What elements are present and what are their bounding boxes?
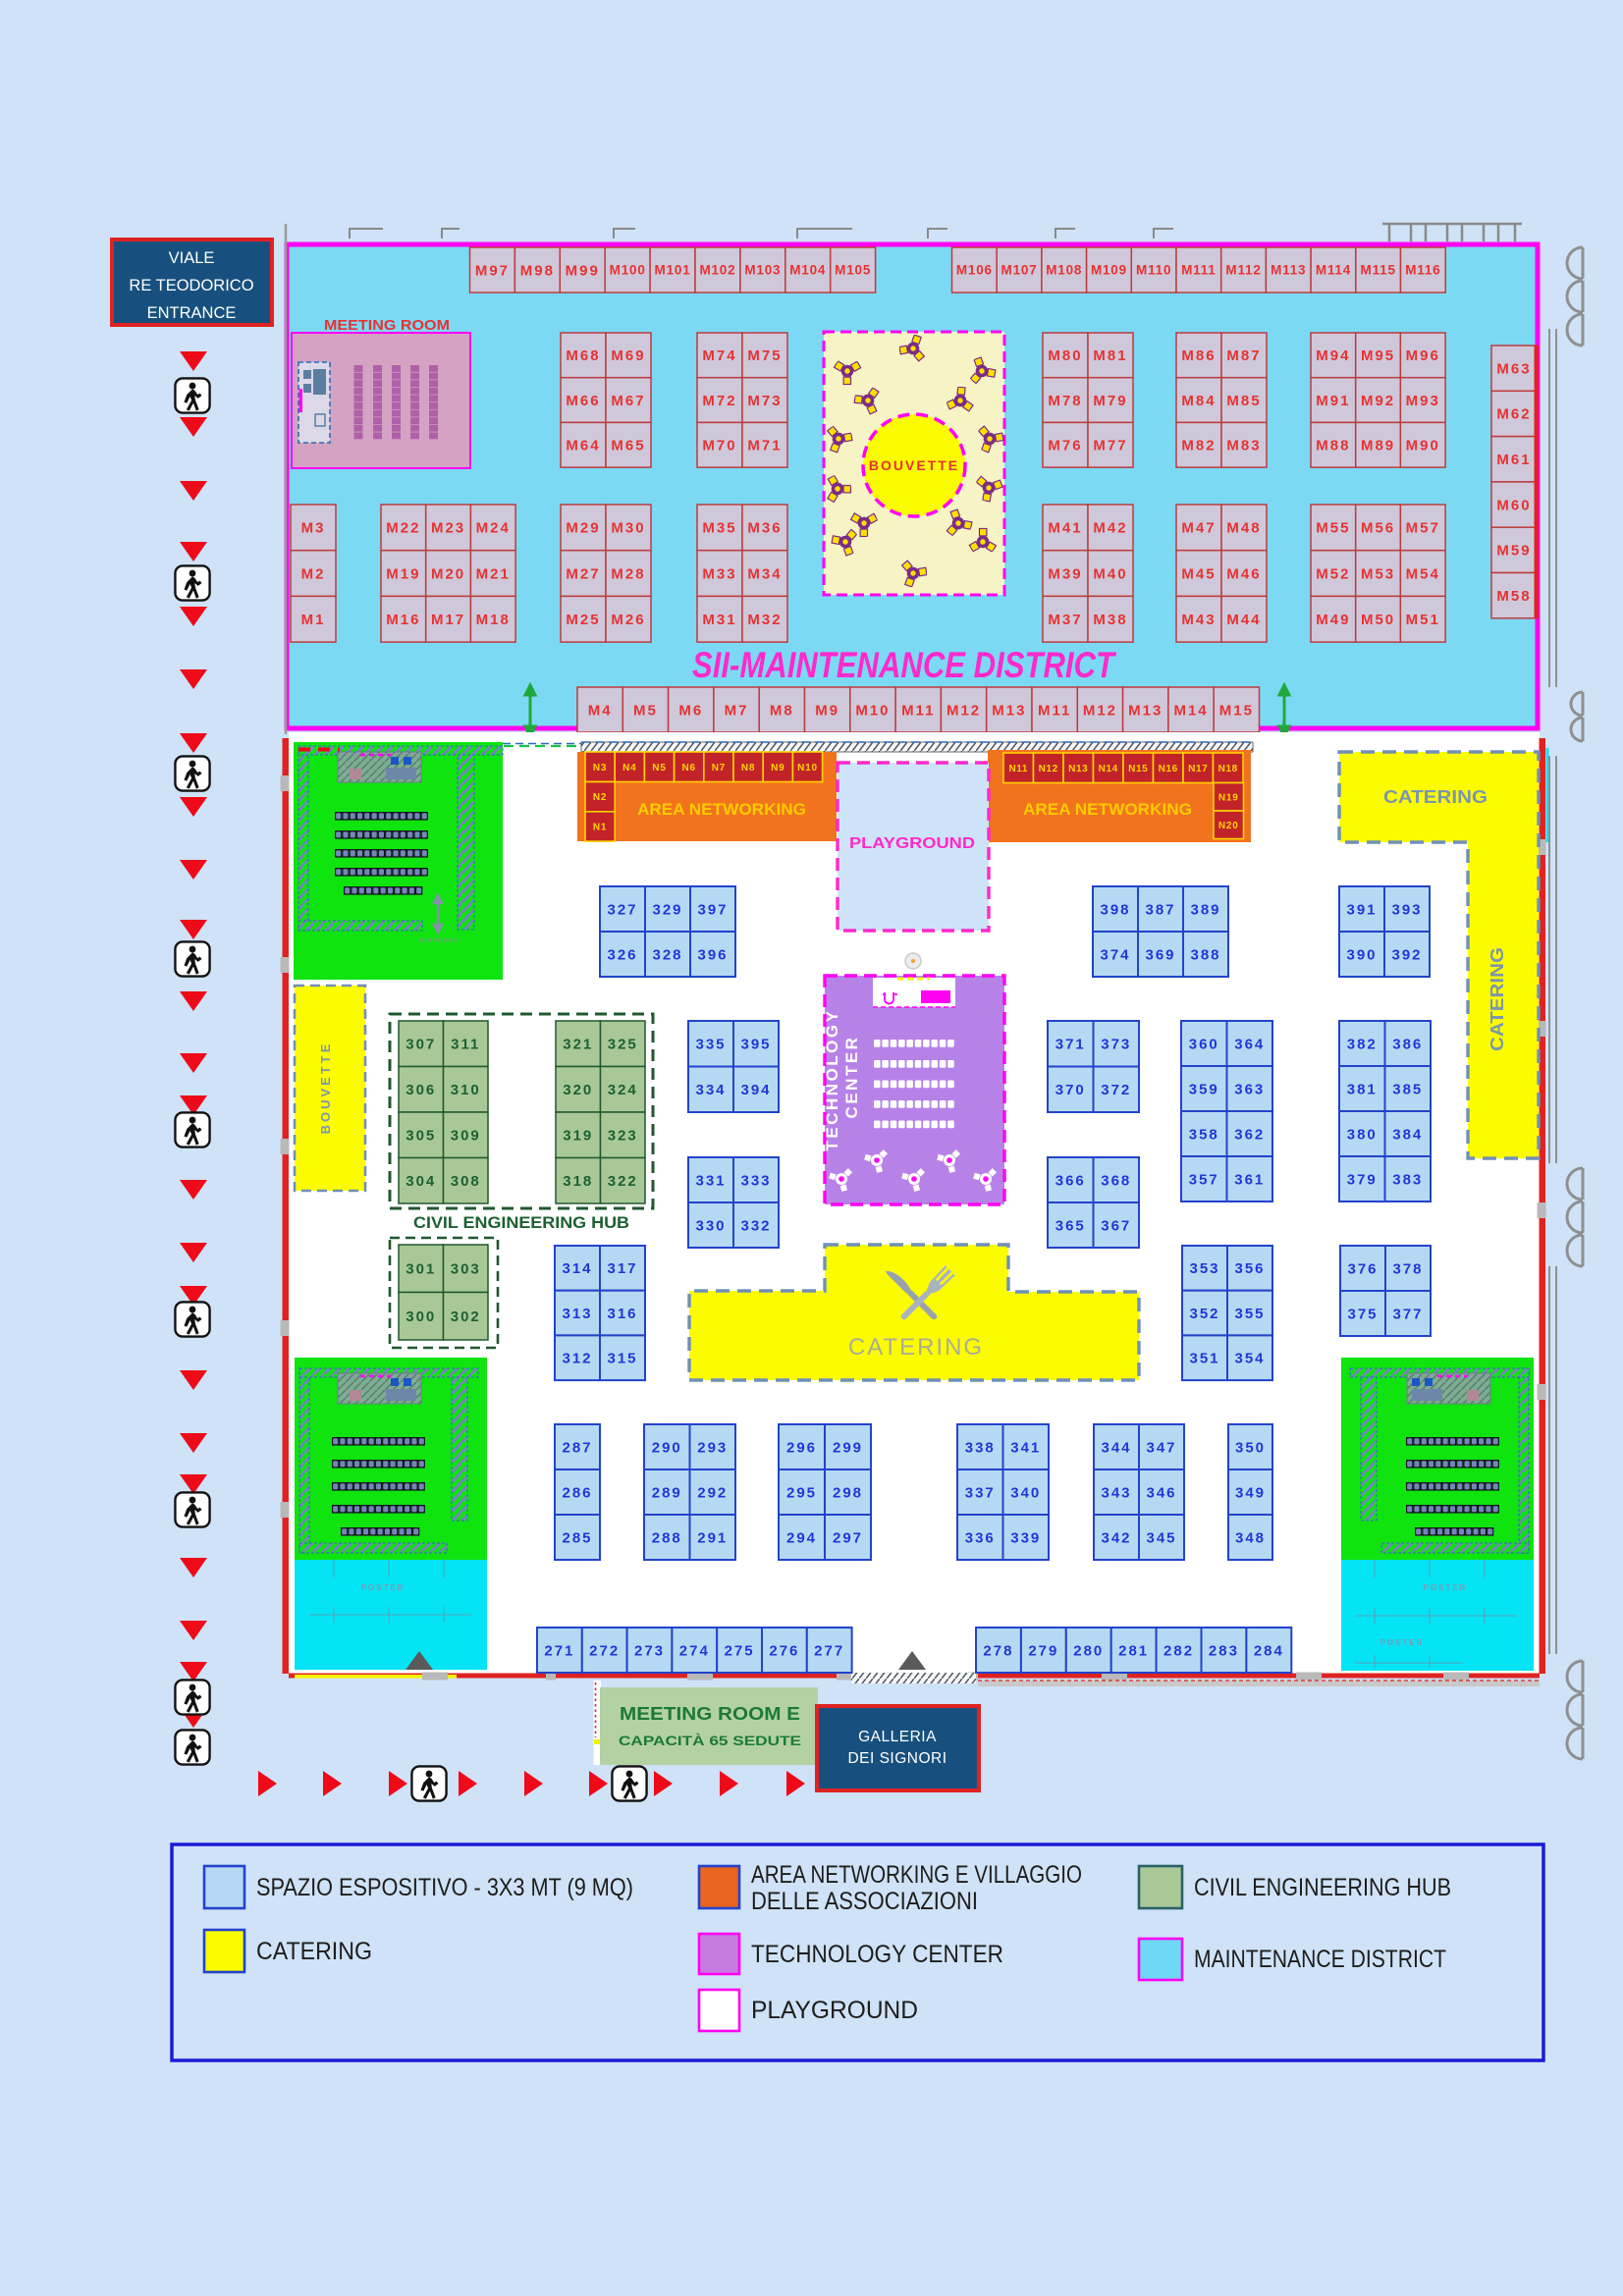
svg-text:M4: M4	[588, 702, 613, 719]
svg-text:M32: M32	[747, 612, 782, 628]
svg-text:M67: M67	[611, 393, 645, 409]
svg-text:M30: M30	[611, 520, 645, 537]
svg-text:DEI SIGNORI: DEI SIGNORI	[847, 1750, 947, 1767]
svg-text:M58: M58	[1496, 588, 1531, 605]
svg-text:M16: M16	[386, 612, 420, 628]
svg-text:336: 336	[965, 1529, 996, 1546]
svg-text:M105: M105	[835, 263, 871, 278]
svg-text:289: 289	[652, 1484, 682, 1501]
svg-text:370: 370	[1055, 1082, 1086, 1098]
svg-text:M45: M45	[1181, 565, 1216, 582]
svg-text:BOUVETTE: BOUVETTE	[318, 1041, 333, 1135]
svg-text:355: 355	[1234, 1306, 1265, 1322]
svg-text:M60: M60	[1496, 497, 1531, 513]
svg-text:388: 388	[1190, 946, 1220, 963]
svg-text:294: 294	[786, 1529, 817, 1546]
svg-text:INGRESSO: INGRESSO	[419, 938, 459, 944]
svg-text:364: 364	[1234, 1036, 1265, 1052]
svg-text:378: 378	[1392, 1260, 1423, 1277]
svg-text:360: 360	[1189, 1036, 1219, 1052]
svg-text:M99: M99	[566, 262, 600, 279]
svg-text:317: 317	[607, 1260, 637, 1277]
svg-text:393: 393	[1391, 901, 1422, 918]
svg-text:M111: M111	[1181, 263, 1216, 278]
svg-text:M63: M63	[1496, 360, 1531, 377]
svg-text:M28: M28	[611, 565, 645, 582]
svg-text:339: 339	[1010, 1529, 1041, 1546]
svg-text:367: 367	[1101, 1217, 1131, 1234]
svg-text:325: 325	[608, 1037, 638, 1053]
svg-text:342: 342	[1101, 1529, 1131, 1546]
svg-text:M50: M50	[1361, 612, 1395, 628]
svg-text:295: 295	[786, 1484, 817, 1501]
svg-text:M61: M61	[1496, 452, 1531, 468]
svg-text:345: 345	[1146, 1529, 1176, 1546]
svg-text:M5: M5	[633, 702, 658, 719]
svg-text:284: 284	[1254, 1642, 1284, 1659]
svg-text:398: 398	[1100, 901, 1130, 918]
svg-text:310: 310	[451, 1082, 481, 1098]
svg-text:314: 314	[562, 1260, 592, 1277]
svg-text:N15: N15	[1128, 764, 1148, 774]
svg-text:TECHNOLOGY CENTER: TECHNOLOGY CENTER	[751, 1941, 1003, 1968]
svg-text:M70: M70	[702, 438, 736, 454]
svg-text:324: 324	[608, 1082, 638, 1098]
svg-text:N9: N9	[771, 763, 784, 774]
svg-text:M64: M64	[566, 438, 600, 454]
svg-text:M78: M78	[1048, 393, 1082, 409]
svg-text:M107: M107	[1001, 263, 1038, 278]
svg-text:N14: N14	[1099, 764, 1118, 774]
svg-text:M90: M90	[1406, 438, 1440, 454]
svg-text:SII-MAINTENANCE DISTRICT: SII-MAINTENANCE DISTRICT	[692, 645, 1117, 685]
svg-text:M1: M1	[301, 612, 326, 628]
svg-text:N8: N8	[741, 763, 755, 774]
svg-text:273: 273	[634, 1642, 665, 1659]
svg-text:M108: M108	[1046, 263, 1082, 278]
svg-text:CATERING: CATERING	[1488, 947, 1507, 1051]
svg-text:M97: M97	[475, 262, 510, 279]
svg-text:M10: M10	[855, 702, 890, 719]
svg-text:379: 379	[1347, 1171, 1378, 1188]
svg-text:CIVIL ENGINEERING HUB: CIVIL ENGINEERING HUB	[413, 1214, 629, 1232]
svg-text:POSTER: POSTER	[1380, 1638, 1425, 1647]
svg-text:M81: M81	[1093, 347, 1127, 364]
svg-text:M53: M53	[1361, 565, 1395, 582]
svg-text:TECHNOLOGY: TECHNOLOGY	[823, 1009, 841, 1151]
svg-text:382: 382	[1347, 1036, 1378, 1052]
svg-text:313: 313	[562, 1306, 592, 1322]
svg-text:N11: N11	[1008, 764, 1028, 774]
svg-text:M13: M13	[992, 702, 1026, 719]
svg-text:282: 282	[1163, 1642, 1194, 1659]
svg-text:318: 318	[563, 1173, 593, 1190]
svg-text:M43: M43	[1181, 612, 1216, 628]
svg-text:M8: M8	[770, 702, 794, 719]
svg-text:332: 332	[740, 1217, 771, 1234]
svg-text:286: 286	[562, 1484, 592, 1501]
svg-text:BOUVETTE: BOUVETTE	[869, 457, 959, 473]
svg-text:365: 365	[1055, 1217, 1086, 1234]
svg-text:M94: M94	[1316, 347, 1350, 364]
svg-text:387: 387	[1145, 901, 1175, 918]
svg-text:386: 386	[1392, 1036, 1423, 1052]
svg-text:AREA NETWORKING E VILLAGGIO: AREA NETWORKING E VILLAGGIO	[751, 1861, 1082, 1889]
svg-text:M57: M57	[1406, 520, 1440, 537]
svg-text:380: 380	[1347, 1126, 1378, 1143]
svg-text:M69: M69	[611, 347, 645, 364]
svg-text:303: 303	[451, 1261, 481, 1278]
svg-text:359: 359	[1189, 1081, 1219, 1097]
svg-text:M68: M68	[566, 347, 600, 364]
svg-text:311: 311	[451, 1037, 480, 1053]
svg-text:356: 356	[1234, 1260, 1265, 1277]
svg-text:340: 340	[1010, 1484, 1041, 1501]
svg-text:M106: M106	[956, 263, 993, 278]
svg-text:M103: M103	[744, 263, 781, 278]
svg-text:M51: M51	[1406, 612, 1440, 628]
svg-text:M11: M11	[901, 702, 935, 719]
svg-text:M52: M52	[1316, 565, 1350, 582]
svg-text:M109: M109	[1091, 263, 1127, 278]
svg-text:369: 369	[1145, 946, 1175, 963]
svg-text:291: 291	[697, 1529, 728, 1546]
svg-text:M13: M13	[1128, 702, 1163, 719]
svg-text:383: 383	[1392, 1171, 1423, 1188]
svg-text:M27: M27	[566, 565, 600, 582]
svg-text:287: 287	[562, 1439, 592, 1456]
svg-text:351: 351	[1189, 1351, 1219, 1367]
svg-text:320: 320	[563, 1082, 593, 1098]
svg-text:M115: M115	[1361, 263, 1396, 278]
svg-text:306: 306	[406, 1082, 436, 1098]
svg-text:M110: M110	[1136, 263, 1171, 278]
svg-text:352: 352	[1189, 1306, 1219, 1322]
svg-text:343: 343	[1101, 1484, 1131, 1501]
svg-text:347: 347	[1146, 1439, 1176, 1456]
svg-text:M37: M37	[1048, 612, 1082, 628]
svg-text:323: 323	[608, 1128, 638, 1145]
svg-text:274: 274	[679, 1642, 710, 1659]
svg-text:346: 346	[1146, 1484, 1176, 1501]
svg-text:338: 338	[965, 1439, 996, 1456]
svg-text:385: 385	[1392, 1081, 1423, 1097]
svg-text:363: 363	[1234, 1081, 1265, 1097]
svg-text:N17: N17	[1188, 764, 1208, 774]
svg-text:300: 300	[406, 1308, 436, 1325]
svg-text:277: 277	[814, 1642, 844, 1659]
svg-text:CIVIL ENGINEERING HUB: CIVIL ENGINEERING HUB	[1194, 1874, 1451, 1901]
svg-text:M31: M31	[702, 612, 736, 628]
svg-text:278: 278	[983, 1642, 1013, 1659]
svg-text:CATERING: CATERING	[1383, 787, 1488, 807]
svg-text:396: 396	[697, 946, 728, 963]
svg-text:N7: N7	[712, 763, 726, 774]
svg-text:395: 395	[740, 1037, 771, 1053]
svg-text:397: 397	[697, 901, 728, 918]
svg-text:361: 361	[1234, 1171, 1265, 1188]
svg-text:M114: M114	[1316, 263, 1351, 278]
svg-text:MEETING ROOM E: MEETING ROOM E	[620, 1704, 800, 1724]
svg-text:M87: M87	[1226, 347, 1261, 364]
svg-text:PLAYGROUND: PLAYGROUND	[849, 835, 975, 852]
svg-text:VIALE: VIALE	[169, 249, 215, 267]
svg-text:M19: M19	[386, 565, 420, 582]
svg-text:353: 353	[1189, 1260, 1219, 1277]
svg-text:312: 312	[562, 1351, 592, 1367]
svg-text:M38: M38	[1093, 612, 1127, 628]
svg-text:308: 308	[451, 1173, 481, 1190]
svg-text:M20: M20	[431, 565, 465, 582]
svg-text:280: 280	[1073, 1642, 1104, 1659]
svg-text:329: 329	[652, 901, 682, 918]
svg-text:348: 348	[1235, 1529, 1266, 1546]
svg-text:MEETING ROOM: MEETING ROOM	[324, 318, 450, 334]
svg-text:327: 327	[607, 901, 637, 918]
svg-text:M113: M113	[1271, 263, 1306, 278]
svg-text:M7: M7	[725, 702, 749, 719]
svg-text:M25: M25	[566, 612, 600, 628]
svg-text:299: 299	[833, 1439, 863, 1456]
svg-text:M80: M80	[1048, 347, 1082, 364]
svg-text:389: 389	[1190, 901, 1220, 918]
svg-text:354: 354	[1234, 1351, 1265, 1367]
svg-text:M35: M35	[702, 520, 736, 537]
svg-text:276: 276	[769, 1642, 799, 1659]
svg-text:368: 368	[1101, 1172, 1131, 1189]
svg-text:322: 322	[608, 1173, 638, 1190]
svg-text:373: 373	[1101, 1037, 1131, 1053]
svg-text:M96: M96	[1406, 347, 1440, 364]
svg-text:M46: M46	[1226, 565, 1261, 582]
svg-text:N20: N20	[1218, 821, 1239, 831]
svg-text:SPAZIO ESPOSITIVO - 3X3 MT (9: SPAZIO ESPOSITIVO - 3X3 MT (9 MQ)	[256, 1874, 633, 1901]
svg-text:326: 326	[607, 946, 637, 963]
svg-text:M104: M104	[789, 263, 826, 278]
svg-text:M3: M3	[301, 520, 326, 537]
svg-text:293: 293	[697, 1439, 728, 1456]
svg-text:M66: M66	[566, 393, 600, 409]
svg-text:M79: M79	[1093, 393, 1127, 409]
svg-text:M74: M74	[702, 347, 736, 364]
svg-text:PLAYGROUND: PLAYGROUND	[751, 1997, 918, 2024]
svg-text:M101: M101	[655, 263, 691, 278]
svg-text:N16: N16	[1159, 764, 1178, 774]
svg-text:N3: N3	[593, 763, 607, 774]
svg-text:279: 279	[1028, 1642, 1058, 1659]
svg-text:292: 292	[697, 1484, 728, 1501]
svg-text:366: 366	[1055, 1172, 1086, 1189]
svg-text:357: 357	[1189, 1171, 1219, 1188]
svg-text:M59: M59	[1496, 543, 1531, 560]
svg-text:350: 350	[1235, 1439, 1266, 1456]
svg-text:390: 390	[1346, 946, 1377, 963]
svg-text:376: 376	[1347, 1260, 1378, 1277]
svg-text:372: 372	[1101, 1082, 1131, 1098]
svg-text:M95: M95	[1361, 347, 1395, 364]
svg-text:N18: N18	[1218, 764, 1238, 774]
svg-text:319: 319	[563, 1128, 593, 1145]
svg-text:301: 301	[406, 1261, 436, 1278]
svg-text:M22: M22	[386, 520, 420, 537]
svg-text:304: 304	[406, 1173, 436, 1190]
svg-text:N12: N12	[1039, 764, 1058, 774]
svg-text:305: 305	[406, 1128, 436, 1145]
svg-text:374: 374	[1100, 946, 1130, 963]
svg-text:349: 349	[1235, 1484, 1266, 1501]
svg-text:344: 344	[1101, 1439, 1131, 1456]
svg-text:377: 377	[1392, 1306, 1423, 1322]
svg-text:POSTER: POSTER	[1424, 1583, 1468, 1592]
svg-text:M54: M54	[1406, 565, 1440, 582]
svg-text:M40: M40	[1093, 565, 1127, 582]
svg-text:394: 394	[740, 1082, 771, 1098]
svg-text:392: 392	[1391, 946, 1422, 963]
svg-text:M49: M49	[1316, 612, 1350, 628]
svg-text:333: 333	[740, 1172, 771, 1189]
svg-text:M71: M71	[747, 438, 782, 454]
svg-text:309: 309	[451, 1128, 481, 1145]
svg-text:330: 330	[695, 1217, 726, 1234]
svg-text:M11: M11	[1038, 702, 1071, 719]
svg-text:N6: N6	[682, 763, 696, 774]
svg-text:271: 271	[544, 1642, 574, 1659]
svg-text:M48: M48	[1226, 520, 1261, 537]
svg-text:POSTER: POSTER	[361, 1583, 406, 1592]
svg-text:M73: M73	[747, 393, 782, 409]
svg-text:298: 298	[833, 1484, 863, 1501]
svg-text:M85: M85	[1226, 393, 1261, 409]
svg-text:M12: M12	[947, 702, 981, 719]
svg-text:315: 315	[607, 1351, 637, 1367]
svg-text:MAINTENANCE DISTRICT: MAINTENANCE DISTRICT	[1194, 1946, 1446, 1973]
svg-text:341: 341	[1010, 1439, 1041, 1456]
svg-text:N5: N5	[652, 763, 666, 774]
svg-text:M18: M18	[476, 612, 511, 628]
svg-text:M116: M116	[1405, 263, 1440, 278]
svg-text:296: 296	[786, 1439, 817, 1456]
svg-text:M41: M41	[1048, 520, 1082, 537]
svg-text:N10: N10	[797, 763, 818, 774]
svg-text:M15: M15	[1219, 702, 1254, 719]
svg-text:M36: M36	[747, 520, 782, 537]
svg-text:M24: M24	[476, 520, 511, 537]
svg-text:275: 275	[725, 1642, 755, 1659]
svg-text:288: 288	[652, 1529, 682, 1546]
svg-text:M93: M93	[1406, 393, 1440, 409]
svg-text:M29: M29	[566, 520, 600, 537]
svg-text:337: 337	[965, 1484, 996, 1501]
svg-text:M17: M17	[431, 612, 465, 628]
svg-text:CAPACITÀ 65 SEDUTE: CAPACITÀ 65 SEDUTE	[619, 1733, 801, 1748]
svg-text:M26: M26	[611, 612, 645, 628]
svg-text:283: 283	[1209, 1642, 1239, 1659]
svg-text:M47: M47	[1181, 520, 1216, 537]
svg-text:N2: N2	[593, 792, 607, 803]
svg-text:M33: M33	[702, 565, 736, 582]
svg-text:358: 358	[1189, 1126, 1219, 1143]
svg-text:ENTRANCE: ENTRANCE	[147, 304, 237, 322]
svg-text:N13: N13	[1068, 764, 1088, 774]
svg-text:M42: M42	[1093, 520, 1127, 537]
svg-text:M34: M34	[747, 565, 782, 582]
svg-text:M55: M55	[1316, 520, 1350, 537]
svg-text:M86: M86	[1181, 347, 1216, 364]
svg-text:M83: M83	[1226, 438, 1261, 454]
svg-text:M62: M62	[1496, 406, 1531, 423]
svg-text:M88: M88	[1316, 438, 1350, 454]
svg-text:316: 316	[607, 1306, 637, 1322]
svg-text:M112: M112	[1225, 263, 1261, 278]
svg-text:GALLERIA: GALLERIA	[858, 1729, 937, 1745]
svg-text:AREA NETWORKING: AREA NETWORKING	[637, 800, 806, 819]
svg-text:321: 321	[563, 1037, 593, 1053]
svg-text:391: 391	[1346, 901, 1377, 918]
svg-text:375: 375	[1347, 1306, 1378, 1322]
svg-text:M82: M82	[1181, 438, 1216, 454]
svg-text:M75: M75	[747, 347, 782, 364]
svg-text:M56: M56	[1361, 520, 1395, 537]
svg-text:362: 362	[1234, 1126, 1265, 1143]
svg-text:272: 272	[589, 1642, 620, 1659]
svg-text:M102: M102	[699, 263, 735, 278]
svg-text:334: 334	[695, 1082, 726, 1098]
svg-text:M100: M100	[610, 263, 646, 278]
svg-text:281: 281	[1118, 1642, 1149, 1659]
svg-text:328: 328	[652, 946, 682, 963]
svg-text:M44: M44	[1226, 612, 1261, 628]
svg-text:M65: M65	[611, 438, 645, 454]
svg-text:M6: M6	[678, 702, 703, 719]
svg-text:384: 384	[1392, 1126, 1423, 1143]
svg-text:DELLE ASSOCIAZIONI: DELLE ASSOCIAZIONI	[751, 1888, 978, 1915]
svg-text:331: 331	[695, 1172, 726, 1189]
svg-text:M9: M9	[815, 702, 839, 719]
svg-text:M72: M72	[702, 393, 736, 409]
svg-text:N19: N19	[1218, 792, 1239, 803]
svg-text:N4: N4	[622, 763, 636, 774]
svg-text:307: 307	[406, 1037, 436, 1053]
svg-text:N1: N1	[593, 822, 607, 832]
svg-text:M84: M84	[1181, 393, 1216, 409]
svg-text:371: 371	[1055, 1037, 1086, 1053]
svg-text:M98: M98	[520, 262, 555, 279]
svg-text:M23: M23	[431, 520, 465, 537]
svg-text:M77: M77	[1093, 438, 1127, 454]
svg-text:AREA NETWORKING: AREA NETWORKING	[1023, 800, 1192, 819]
svg-text:CATERING: CATERING	[256, 1938, 372, 1965]
svg-text:297: 297	[833, 1529, 863, 1546]
svg-text:290: 290	[652, 1439, 682, 1456]
svg-text:M14: M14	[1173, 702, 1208, 719]
svg-text:381: 381	[1347, 1081, 1378, 1097]
svg-text:335: 335	[695, 1037, 726, 1053]
svg-text:M12: M12	[1083, 702, 1117, 719]
svg-text:M39: M39	[1048, 565, 1082, 582]
svg-text:CATERING: CATERING	[848, 1334, 984, 1361]
svg-text:M89: M89	[1361, 438, 1395, 454]
svg-text:M92: M92	[1361, 393, 1395, 409]
svg-text:302: 302	[451, 1308, 481, 1325]
svg-text:RE TEODORICO: RE TEODORICO	[129, 277, 253, 294]
svg-text:M91: M91	[1316, 393, 1350, 409]
svg-text:M2: M2	[301, 565, 326, 582]
svg-text:CENTER: CENTER	[842, 1036, 861, 1119]
svg-text:285: 285	[562, 1529, 592, 1546]
svg-text:M21: M21	[476, 565, 511, 582]
svg-text:M76: M76	[1048, 438, 1082, 454]
